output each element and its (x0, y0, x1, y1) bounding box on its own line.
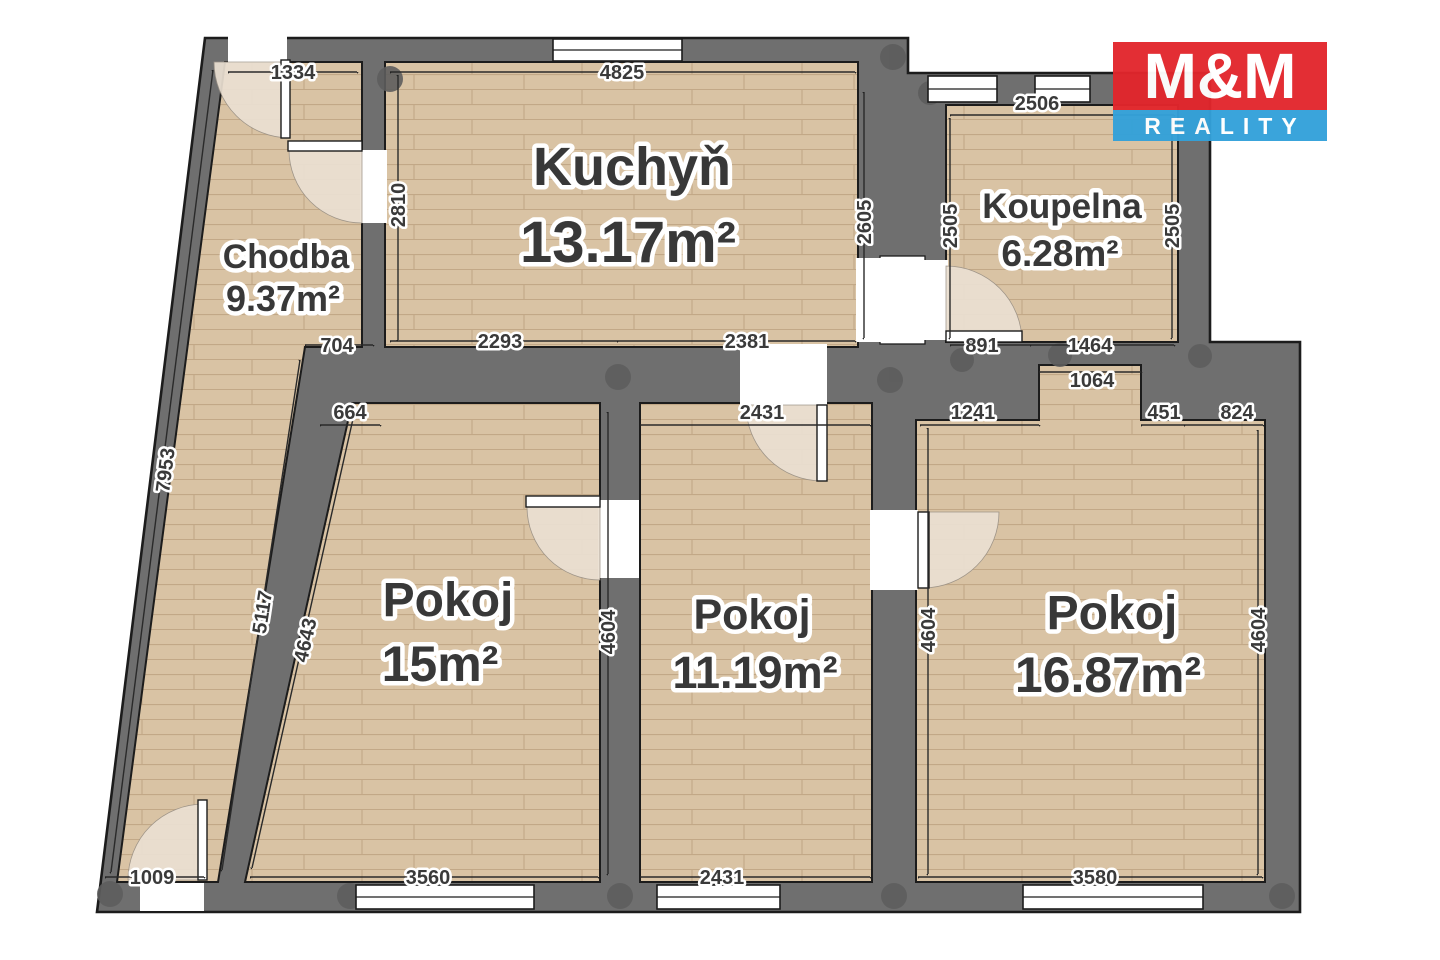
dim-label: 3560 (406, 867, 451, 889)
dim-label: 2505 (1162, 204, 1184, 249)
agency-logo: M&M REALITY (1113, 40, 1327, 141)
dim-label: 2431 (740, 402, 785, 424)
dim-label: 2505 (940, 204, 962, 249)
room-label-pokoj16-name: Pokoj (1047, 587, 1178, 640)
floor-plan-drawing: 1334 4825 2506 704 2293 2381 891 1464 10… (0, 0, 1440, 960)
room-label-pokoj15-name: Pokoj (383, 574, 514, 627)
dim-label: 1064 (1070, 370, 1115, 392)
room-label-kuchyn-name: Kuchyň (533, 137, 731, 197)
dim-label: 451 (1147, 402, 1180, 424)
dim-label: 4604 (1248, 607, 1270, 652)
dim-label: 891 (965, 335, 998, 357)
kuchyn-vestibule-opening (856, 258, 882, 342)
logo-subtitle: REALITY (1144, 113, 1305, 139)
dim-label: 2431 (700, 867, 745, 889)
entrance-opening (228, 36, 287, 63)
room-kuchyn-floor (385, 62, 858, 347)
dim-label: 2605 (854, 200, 876, 245)
room-label-pokoj16-area: 16.87m² (1015, 647, 1201, 703)
pokoj16-door-opening (870, 510, 918, 590)
dim-label: 1334 (271, 62, 316, 84)
room-label-chodba-name: Chodba (223, 238, 351, 276)
kuchyn-door-leaf (288, 141, 362, 151)
dim-label: 3580 (1073, 867, 1118, 889)
dim-label: 4825 (600, 62, 645, 84)
room-label-pokoj11-name: Pokoj (693, 591, 810, 639)
pokoj15-door-leaf (526, 496, 600, 507)
vestibule-floor (880, 256, 925, 344)
dim-label: 2810 (388, 183, 410, 228)
dim-label: 2381 (725, 331, 770, 353)
dim-label: 1464 (1068, 335, 1113, 357)
chodba-bottom-door-leaf (198, 800, 207, 880)
dim-label: 824 (1220, 402, 1254, 424)
dim-label: 4604 (918, 607, 940, 652)
pokoj15-door-opening (598, 500, 639, 578)
koupelna-door-opening (923, 260, 948, 340)
room-label-pokoj15-area: 15m² (382, 636, 499, 692)
room-pokoj11-floor (640, 403, 872, 882)
dim-label: 2506 (1015, 93, 1060, 115)
kuchyn-door-opening (360, 150, 387, 223)
pokoj11-door-opening (740, 344, 827, 405)
dim-label: 1009 (130, 867, 175, 889)
room-label-kuchyn-area: 13.17m² (520, 210, 736, 275)
dim-label: 4604 (598, 609, 620, 654)
room-label-koupelna-name: Koupelna (982, 187, 1142, 226)
room-label-chodba-area: 9.37m² (226, 278, 340, 319)
dim-label: 1241 (951, 402, 996, 424)
dim-label: 704 (320, 335, 354, 357)
room-label-koupelna-area: 6.28m² (1001, 233, 1118, 274)
room-label-pokoj11-area: 11.19m² (672, 647, 837, 698)
dim-label: 2293 (478, 331, 523, 353)
pokoj11-door-leaf (817, 405, 827, 481)
logo-title: M&M (1144, 40, 1297, 112)
dim-label: 664 (333, 402, 367, 424)
floor-plan-page: 1334 4825 2506 704 2293 2381 891 1464 10… (0, 0, 1440, 960)
